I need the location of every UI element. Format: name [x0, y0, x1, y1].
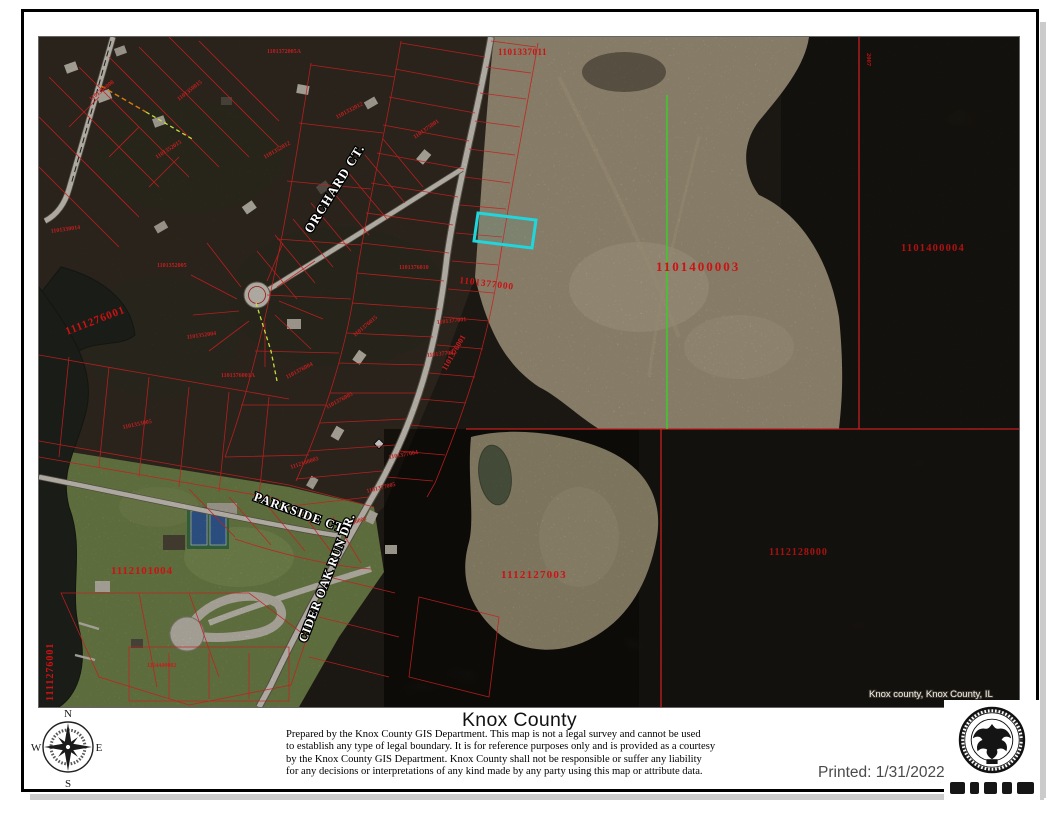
compass-e: E — [96, 742, 103, 754]
map-canvas: 1101372005A 1101352015 1101350008 110133… — [38, 36, 1020, 708]
compass-rose: N S E W — [28, 703, 108, 789]
knox-county-seal-icon — [952, 700, 1032, 780]
svg-text:1101376001A: 1101376001A — [221, 373, 256, 379]
parcel-label: 1101337011 — [498, 47, 547, 57]
map-attribution: Knox county, Knox County, IL — [869, 689, 993, 700]
svg-text:1101352005: 1101352005 — [157, 263, 187, 269]
parcel-label: 1101400004 — [901, 243, 965, 254]
svg-text:1114400002: 1114400002 — [147, 663, 176, 669]
aerial-map: 1101372005A 1101352015 1101350008 110133… — [39, 37, 1019, 707]
compass-w: W — [31, 742, 42, 754]
selected-parcel[interactable] — [474, 213, 536, 248]
svg-text:1101372005A: 1101372005A — [267, 49, 302, 55]
seal-box — [944, 700, 1040, 802]
printed-date: Printed: 1/31/2022 — [818, 764, 945, 782]
parcel-label: 2007 — [865, 53, 872, 67]
svg-text:1101376010: 1101376010 — [399, 265, 429, 271]
photo-grain — [39, 37, 1019, 707]
disclaimer-text: Prepared by the Knox County GIS Departme… — [286, 729, 756, 779]
eagle-emblem — [973, 724, 1011, 759]
parcel-label: 1112127003 — [501, 569, 567, 581]
parcel-label: 1112101004 — [111, 565, 173, 577]
parcel-label: 1111276001 — [45, 643, 56, 701]
parcel-label: 1101400003 — [656, 259, 740, 274]
disclaimer-line: to establish any type of legal boundary.… — [286, 741, 756, 753]
page-shadow-right — [1040, 22, 1046, 798]
compass-s: S — [65, 778, 71, 789]
map-frame: 1101372005A 1101352015 1101350008 110133… — [21, 9, 1039, 792]
parcel-label: 1112128000 — [769, 547, 828, 558]
compass-n: N — [64, 708, 72, 720]
disclaimer-line: by the Knox County GIS Department. Knox … — [286, 754, 756, 766]
disclaimer-line: Prepared by the Knox County GIS Departme… — [286, 729, 756, 741]
page-shadow-bottom — [30, 794, 1044, 800]
printed-map-page: 1101372005A 1101352015 1101350008 110133… — [0, 0, 1056, 816]
cropped-text-fragments — [950, 782, 1034, 794]
disclaimer-line: for any decisions or interpretations of … — [286, 766, 756, 778]
